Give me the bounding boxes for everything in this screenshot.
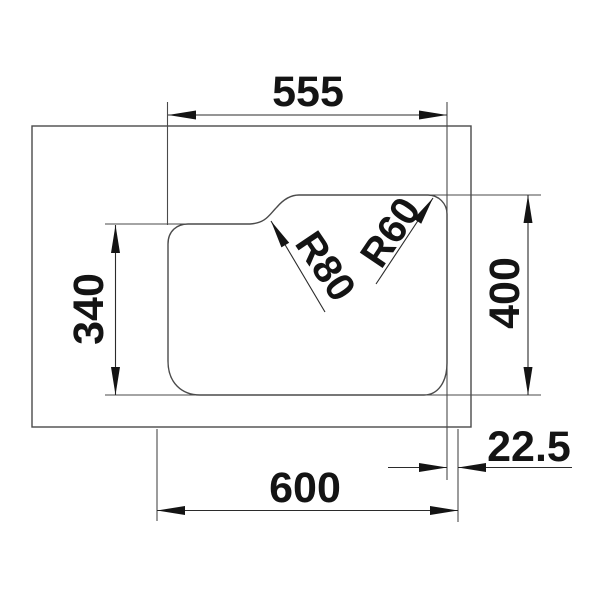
dimension-bowl-left-depth: 340 [65, 225, 120, 395]
technical-drawing-canvas: 555 340 400 600 22.5 [0, 0, 600, 600]
dimension-edge-offset: 22.5 [388, 423, 572, 472]
arrow-right-icon [419, 111, 447, 120]
dimension-bowl-width: 555 [168, 68, 447, 120]
extension-lines-group [105, 102, 541, 522]
dimension-label-overall-width: 600 [269, 464, 341, 512]
sink-dimension-drawing: 555 340 400 600 22.5 [0, 0, 600, 600]
dimension-overall-width: 600 [157, 464, 458, 515]
dimension-label-edge-offset: 22.5 [487, 423, 571, 471]
radius-callout-corner: R60 [352, 190, 433, 284]
arrow-up-icon [524, 195, 533, 223]
arrow-up-left-icon [271, 221, 289, 247]
arrow-down-icon [111, 367, 120, 395]
dimension-bowl-right-depth: 400 [481, 195, 533, 395]
dimension-label-bowl-width: 555 [272, 68, 344, 116]
radius-label-corner: R60 [352, 190, 430, 275]
arrow-right-icon [430, 506, 458, 515]
arrow-left-icon [458, 463, 486, 472]
arrow-left-icon [157, 506, 185, 515]
arrow-left-icon [168, 111, 196, 120]
dimension-label-bowl-right-depth: 400 [481, 257, 529, 329]
arrow-down-icon [524, 367, 533, 395]
radius-callout-notch: R80 [271, 221, 364, 312]
dimension-label-bowl-left-depth: 340 [65, 273, 113, 345]
arrow-up-icon [111, 225, 120, 253]
arrow-right-icon [419, 463, 447, 472]
